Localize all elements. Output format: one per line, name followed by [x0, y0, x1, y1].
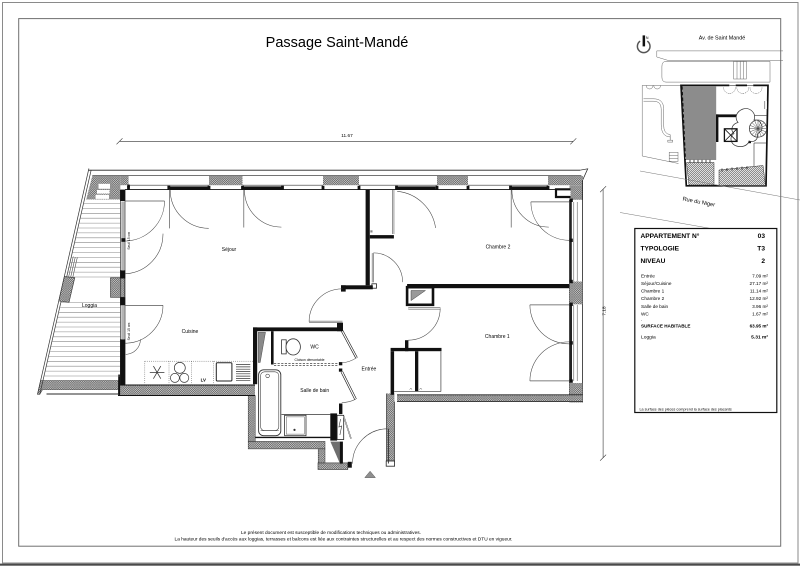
svg-text:1.67 m²: 1.67 m²	[752, 311, 768, 316]
svg-text:11.67: 11.67	[341, 133, 353, 138]
svg-text:TYPOLOGIE: TYPOLOGIE	[641, 245, 680, 252]
svg-text:Chambre 2: Chambre 2	[486, 245, 511, 251]
svg-text:Salle de bain: Salle de bain	[300, 388, 329, 394]
svg-text:Passage Saint-Mandé: Passage Saint-Mandé	[266, 35, 409, 51]
svg-text:Loggia: Loggia	[641, 335, 656, 341]
svg-text:LV: LV	[201, 378, 206, 383]
svg-text:Cloison démontable: Cloison démontable	[295, 358, 325, 362]
svg-text:Chambre 1: Chambre 1	[641, 289, 665, 294]
svg-text:Le présent document est suscep: Le présent document est susceptible de m…	[241, 530, 421, 536]
svg-text:7.09 m²: 7.09 m²	[752, 273, 768, 278]
svg-text:Rue du Niger: Rue du Niger	[682, 196, 716, 208]
svg-text:3.96 m²: 3.96 m²	[752, 304, 768, 309]
svg-text:5.31 m²: 5.31 m²	[751, 335, 768, 341]
svg-text:Seuil 15 cm: Seuil 15 cm	[127, 232, 131, 250]
svg-text:La hauteur des seuils d'accès: La hauteur des seuils d'accès aux loggia…	[175, 537, 513, 543]
svg-text:WC: WC	[310, 344, 319, 350]
svg-text:Chambre 1: Chambre 1	[485, 334, 510, 340]
svg-text:Entrée: Entrée	[362, 366, 377, 372]
svg-text:N: N	[646, 36, 649, 40]
svg-text:7.18: 7.18	[601, 306, 606, 316]
svg-text:03: 03	[758, 233, 766, 240]
svg-text:Chambre 2: Chambre 2	[641, 296, 665, 301]
svg-text:63.95 m²: 63.95 m²	[750, 323, 769, 328]
svg-text:Séjour/Cuisine: Séjour/Cuisine	[641, 281, 672, 286]
svg-text:NIVEAU: NIVEAU	[641, 258, 666, 265]
svg-text:Av. de Saint Mandé: Av. de Saint Mandé	[699, 35, 746, 41]
svg-text:T3: T3	[757, 245, 765, 252]
svg-text:APPARTEMENT N°: APPARTEMENT N°	[641, 232, 700, 240]
svg-text:Séjour: Séjour	[222, 247, 237, 253]
svg-text:Entrée: Entrée	[641, 273, 655, 278]
svg-text:.: .	[641, 317, 642, 322]
svg-text:Loggia: Loggia	[82, 303, 97, 309]
svg-text:11.14 m²: 11.14 m²	[750, 289, 769, 294]
svg-text:La surface des pièces comprend: La surface des pièces comprend la surfac…	[640, 407, 732, 411]
svg-text:SURFACE HABITABLE: SURFACE HABITABLE	[641, 323, 690, 328]
svg-text:Cuisine: Cuisine	[182, 329, 199, 335]
svg-text:27.17 m²: 27.17 m²	[750, 281, 769, 286]
svg-text:12.92 m²: 12.92 m²	[750, 296, 769, 301]
svg-text:Seuil 15 cm: Seuil 15 cm	[127, 322, 131, 340]
svg-text:2: 2	[761, 258, 765, 265]
svg-text:Salle de bain: Salle de bain	[641, 304, 668, 309]
